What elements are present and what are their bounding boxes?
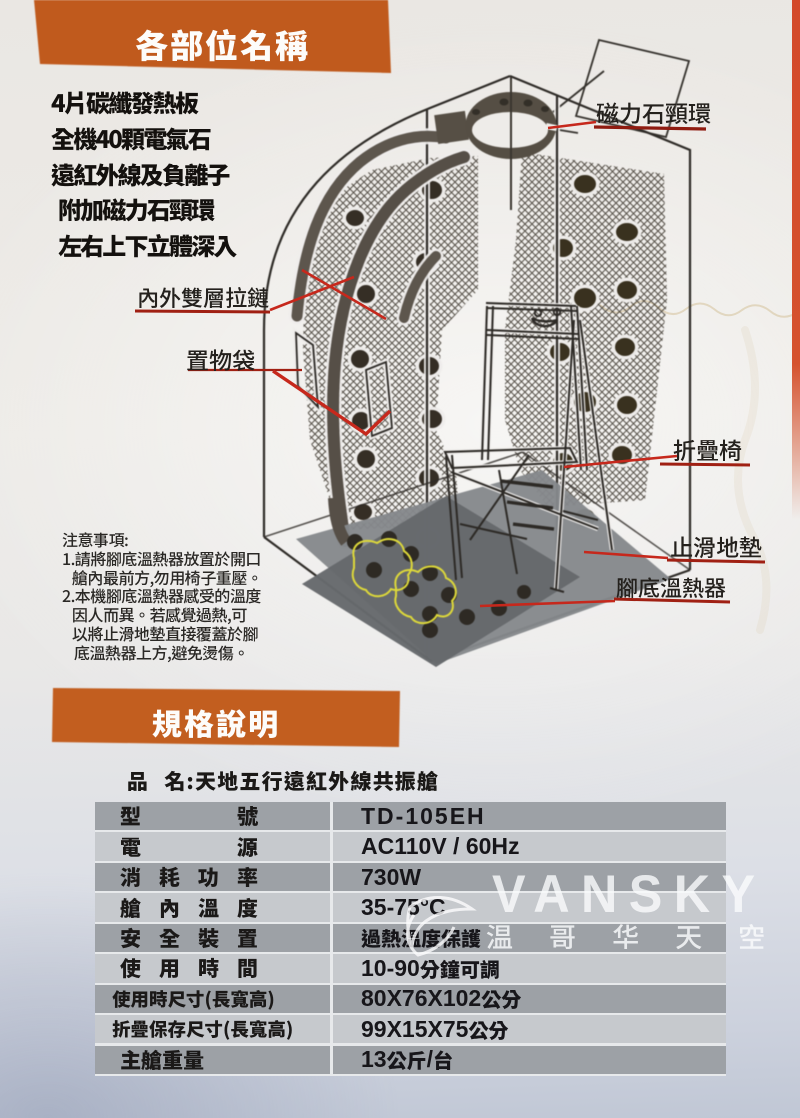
svg-text:磁力石頸環: 磁力石頸環 (596, 95, 711, 129)
svg-text:止滑地墊: 止滑地墊 (670, 529, 762, 563)
svg-text:折疊椅: 折疊椅 (673, 432, 742, 466)
svg-text:置物袋: 置物袋 (186, 342, 255, 376)
svg-text:內外雙層拉鏈: 內外雙層拉鏈 (137, 281, 269, 313)
svg-text:腳底溫熱器: 腳底溫熱器 (616, 571, 726, 603)
